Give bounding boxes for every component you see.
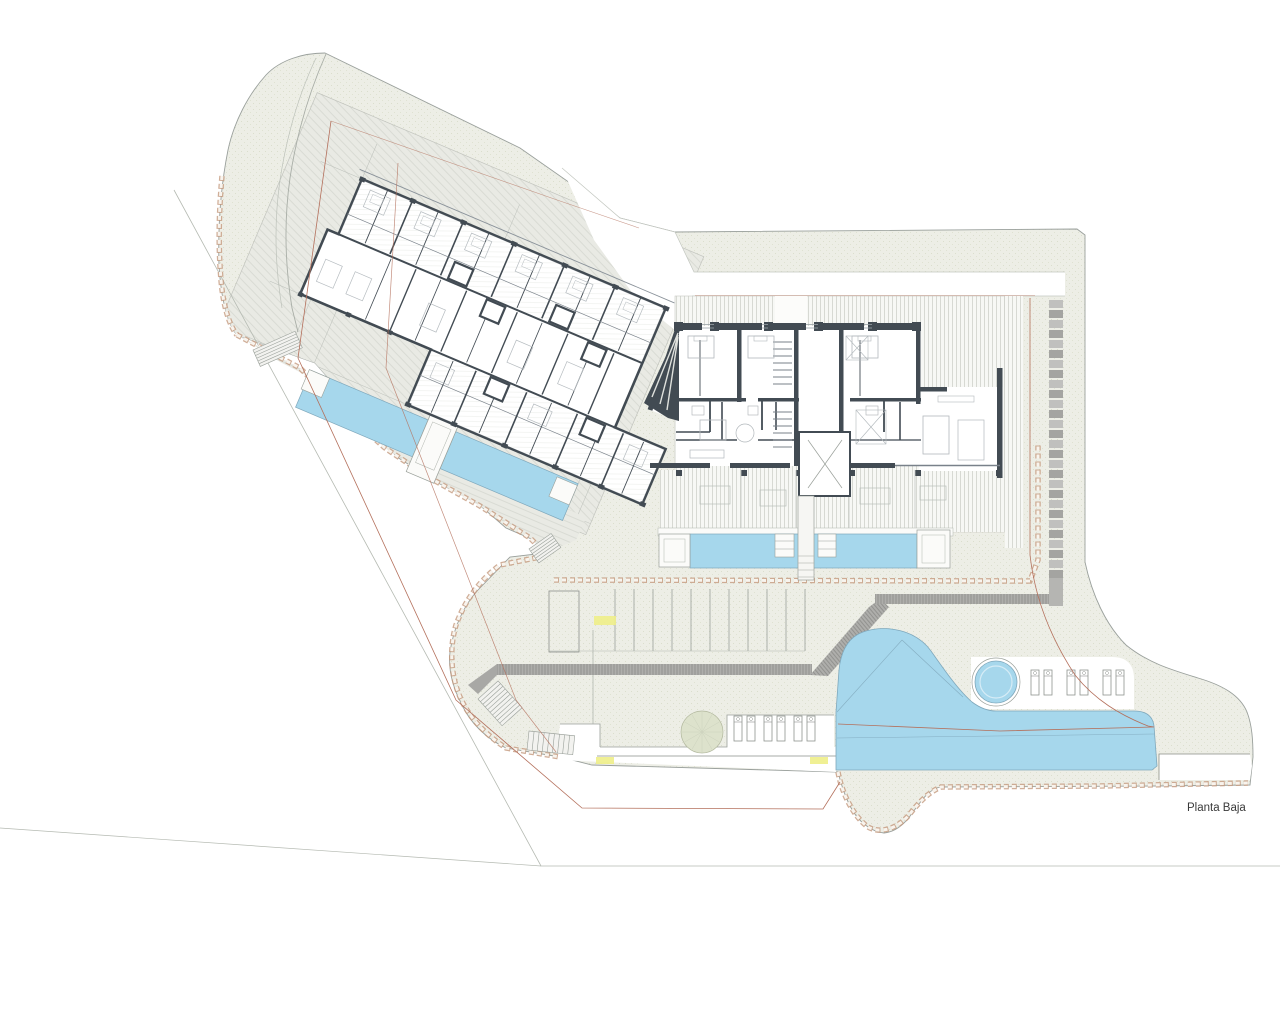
svg-text:Planta Baja: Planta Baja <box>1187 802 1246 814</box>
